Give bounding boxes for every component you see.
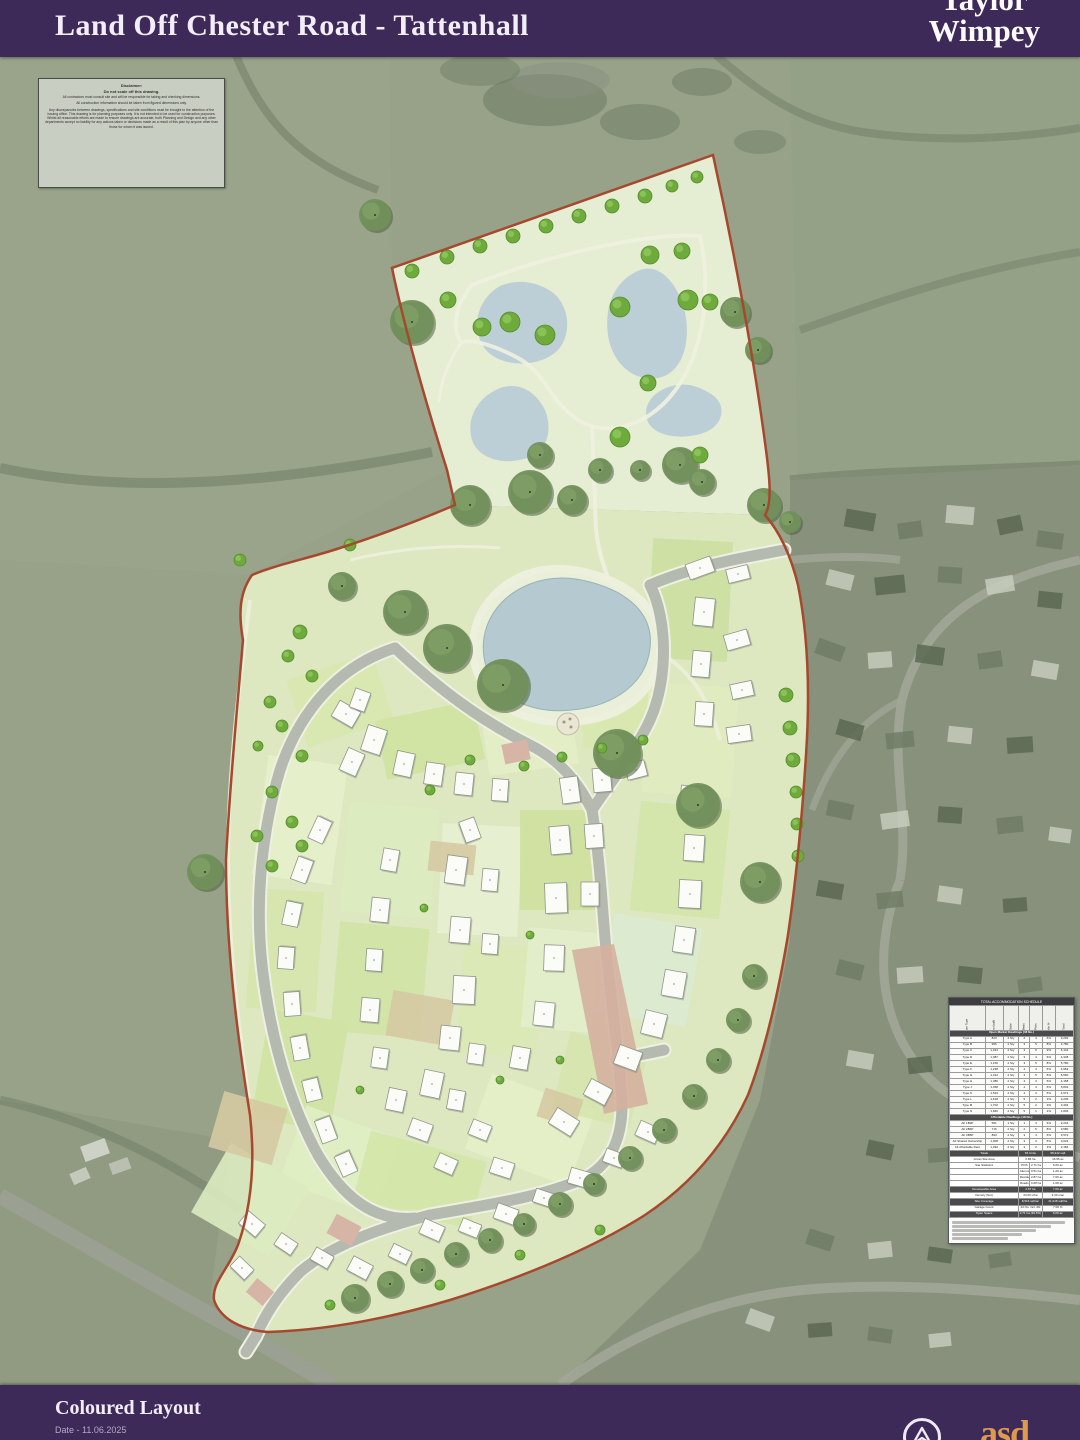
drawing-date: Date - 11.06.2025: [55, 1425, 126, 1435]
schedule-title: TOTAL ACCOMMODATION SCHEDULE: [949, 998, 1074, 1005]
schedule-table: House TypeArea (sqft)StyleBedsPlotsMix %…: [949, 1005, 1074, 1218]
disclaimer-paragraph: Any discrepancies between drawings, spec…: [44, 108, 219, 129]
coloured-layout-sheet: Land Off Chester Road - Tattenhall Taylo…: [0, 0, 1080, 1440]
title-bar: Land Off Chester Road - Tattenhall Taylo…: [0, 0, 1080, 57]
schedule-column-header: Plots: [1030, 1006, 1042, 1031]
taylor-wimpey-logo: Taylor Wimpey: [929, 0, 1040, 46]
page-title: Land Off Chester Road - Tattenhall: [55, 9, 529, 43]
schedule-column-header: Total: [1056, 1006, 1074, 1031]
site-plan-map: [0, 0, 1080, 1440]
disclaimer-subtitle: Do not scale off this drawing.: [44, 89, 219, 94]
disclaimer-box: Disclaimer: Do not scale off this drawin…: [38, 78, 225, 188]
logo-line-2: Wimpey: [929, 15, 1040, 46]
schedule-column-header: Mix %: [1042, 1006, 1055, 1031]
disclaimer-paragraph: All construction information should be t…: [44, 101, 219, 105]
disclaimer-paragraph: All contractors must consult site and wi…: [44, 95, 219, 99]
table-row: Open Space2.71 ha (39.5%)6.69 ac: [950, 1211, 1074, 1217]
schedule-notes: [949, 1218, 1074, 1244]
schedule-column-header: Area (sqft): [985, 1006, 1003, 1031]
schedule-column-header: Style: [1003, 1006, 1019, 1031]
drawing-title: Coloured Layout: [55, 1397, 201, 1420]
schedule-column-header: House Type: [950, 1006, 986, 1031]
consultant-logo: asd: [980, 1412, 1029, 1440]
disclaimer-title: Disclaimer:: [44, 83, 219, 88]
schedule-column-header: Beds: [1019, 1006, 1030, 1031]
accommodation-schedule: TOTAL ACCOMMODATION SCHEDULE House TypeA…: [948, 997, 1075, 1244]
